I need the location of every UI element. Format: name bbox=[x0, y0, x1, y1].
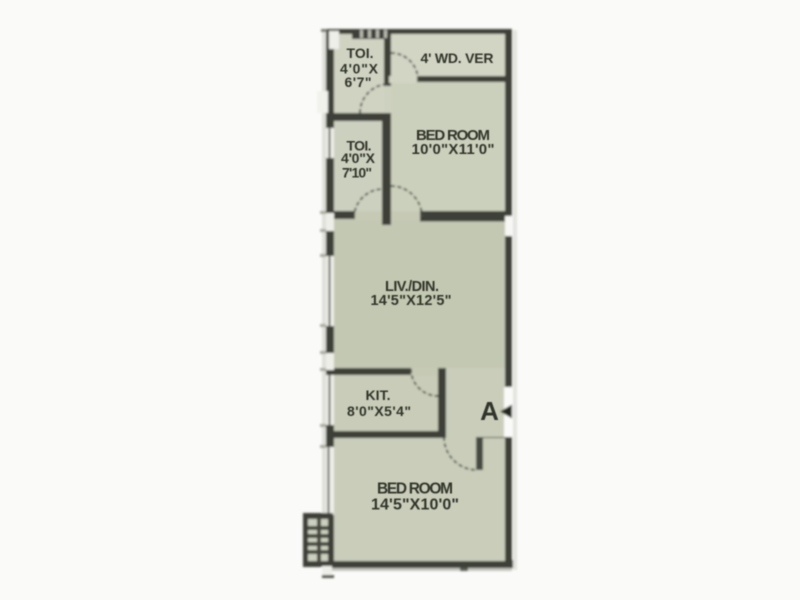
svg-text:A: A bbox=[480, 396, 499, 426]
svg-text:14'5"X10'0": 14'5"X10'0" bbox=[371, 497, 459, 514]
svg-text:TOI.: TOI. bbox=[347, 45, 374, 61]
svg-text:10'0"X11'0": 10'0"X11'0" bbox=[412, 141, 495, 158]
svg-text:4' WD. VER: 4' WD. VER bbox=[421, 50, 494, 66]
svg-text:14'5"X12'5": 14'5"X12'5" bbox=[371, 293, 452, 309]
svg-text:8'0"X5'4": 8'0"X5'4" bbox=[347, 403, 411, 419]
svg-text:BED ROOM: BED ROOM bbox=[377, 481, 453, 498]
svg-text:KIT.: KIT. bbox=[366, 387, 391, 403]
svg-text:7'10": 7'10" bbox=[342, 165, 372, 181]
svg-text:6'7": 6'7" bbox=[345, 74, 372, 90]
